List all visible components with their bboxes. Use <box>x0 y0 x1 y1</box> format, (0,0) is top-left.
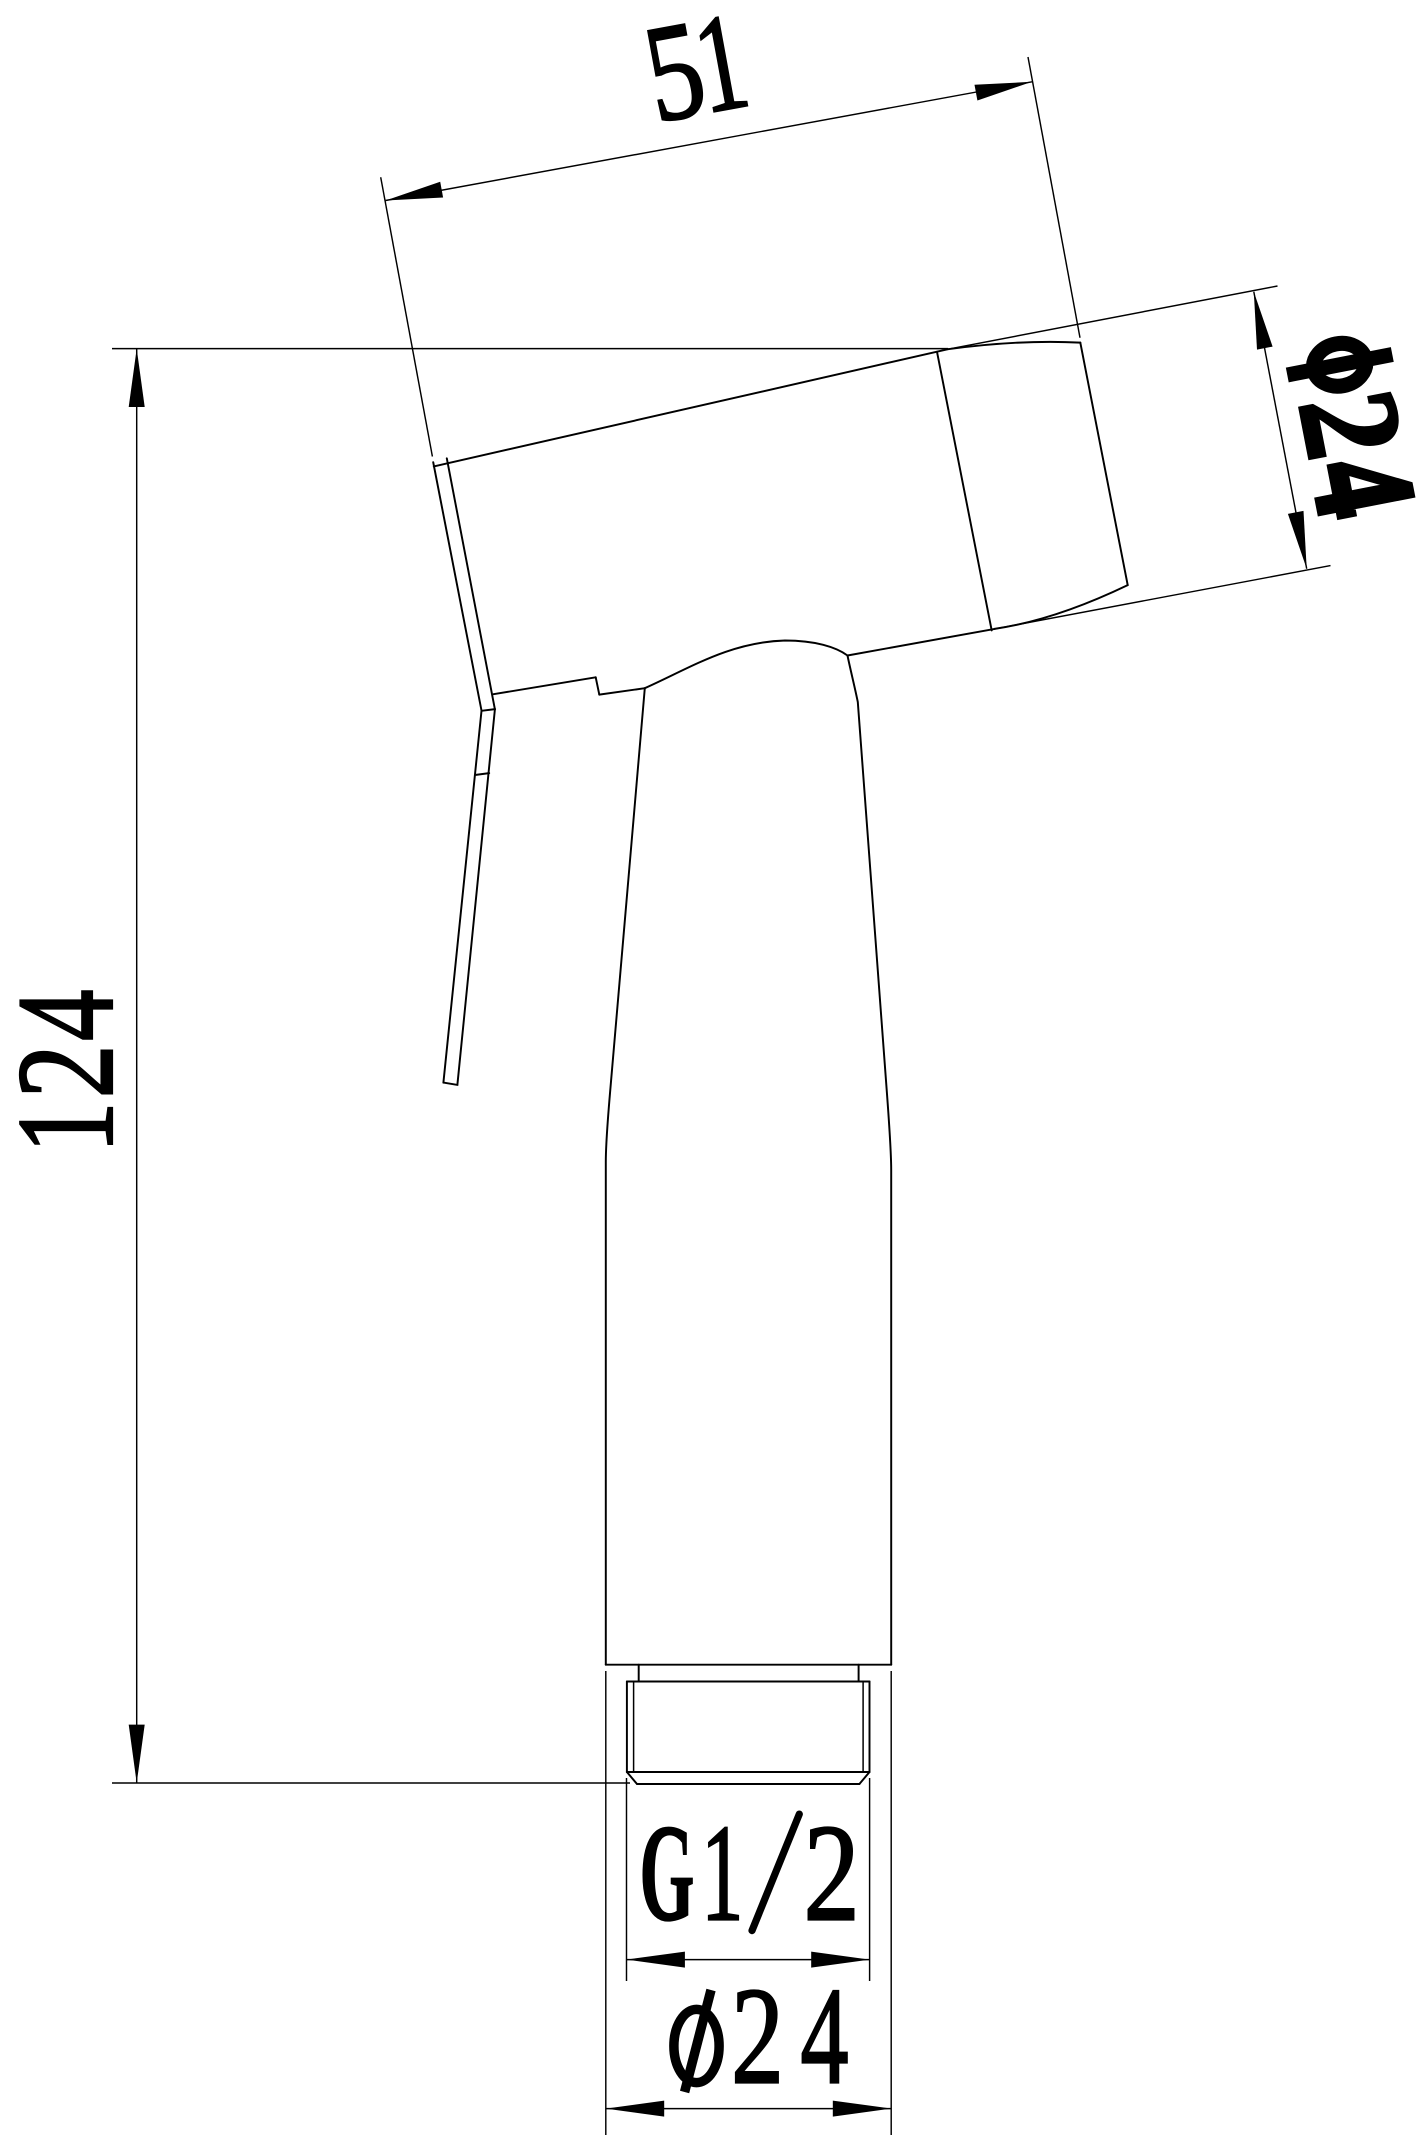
svg-text:1: 1 <box>701 1795 743 1950</box>
svg-text:2: 2 <box>731 1959 784 2113</box>
svg-text:4: 4 <box>800 1958 848 2113</box>
svg-text:4: 4 <box>0 989 143 1041</box>
svg-text:2: 2 <box>0 1044 142 1098</box>
svg-text:2: 2 <box>803 1796 859 1950</box>
svg-text:G: G <box>639 1796 694 1950</box>
svg-text:1: 1 <box>0 1102 143 1154</box>
